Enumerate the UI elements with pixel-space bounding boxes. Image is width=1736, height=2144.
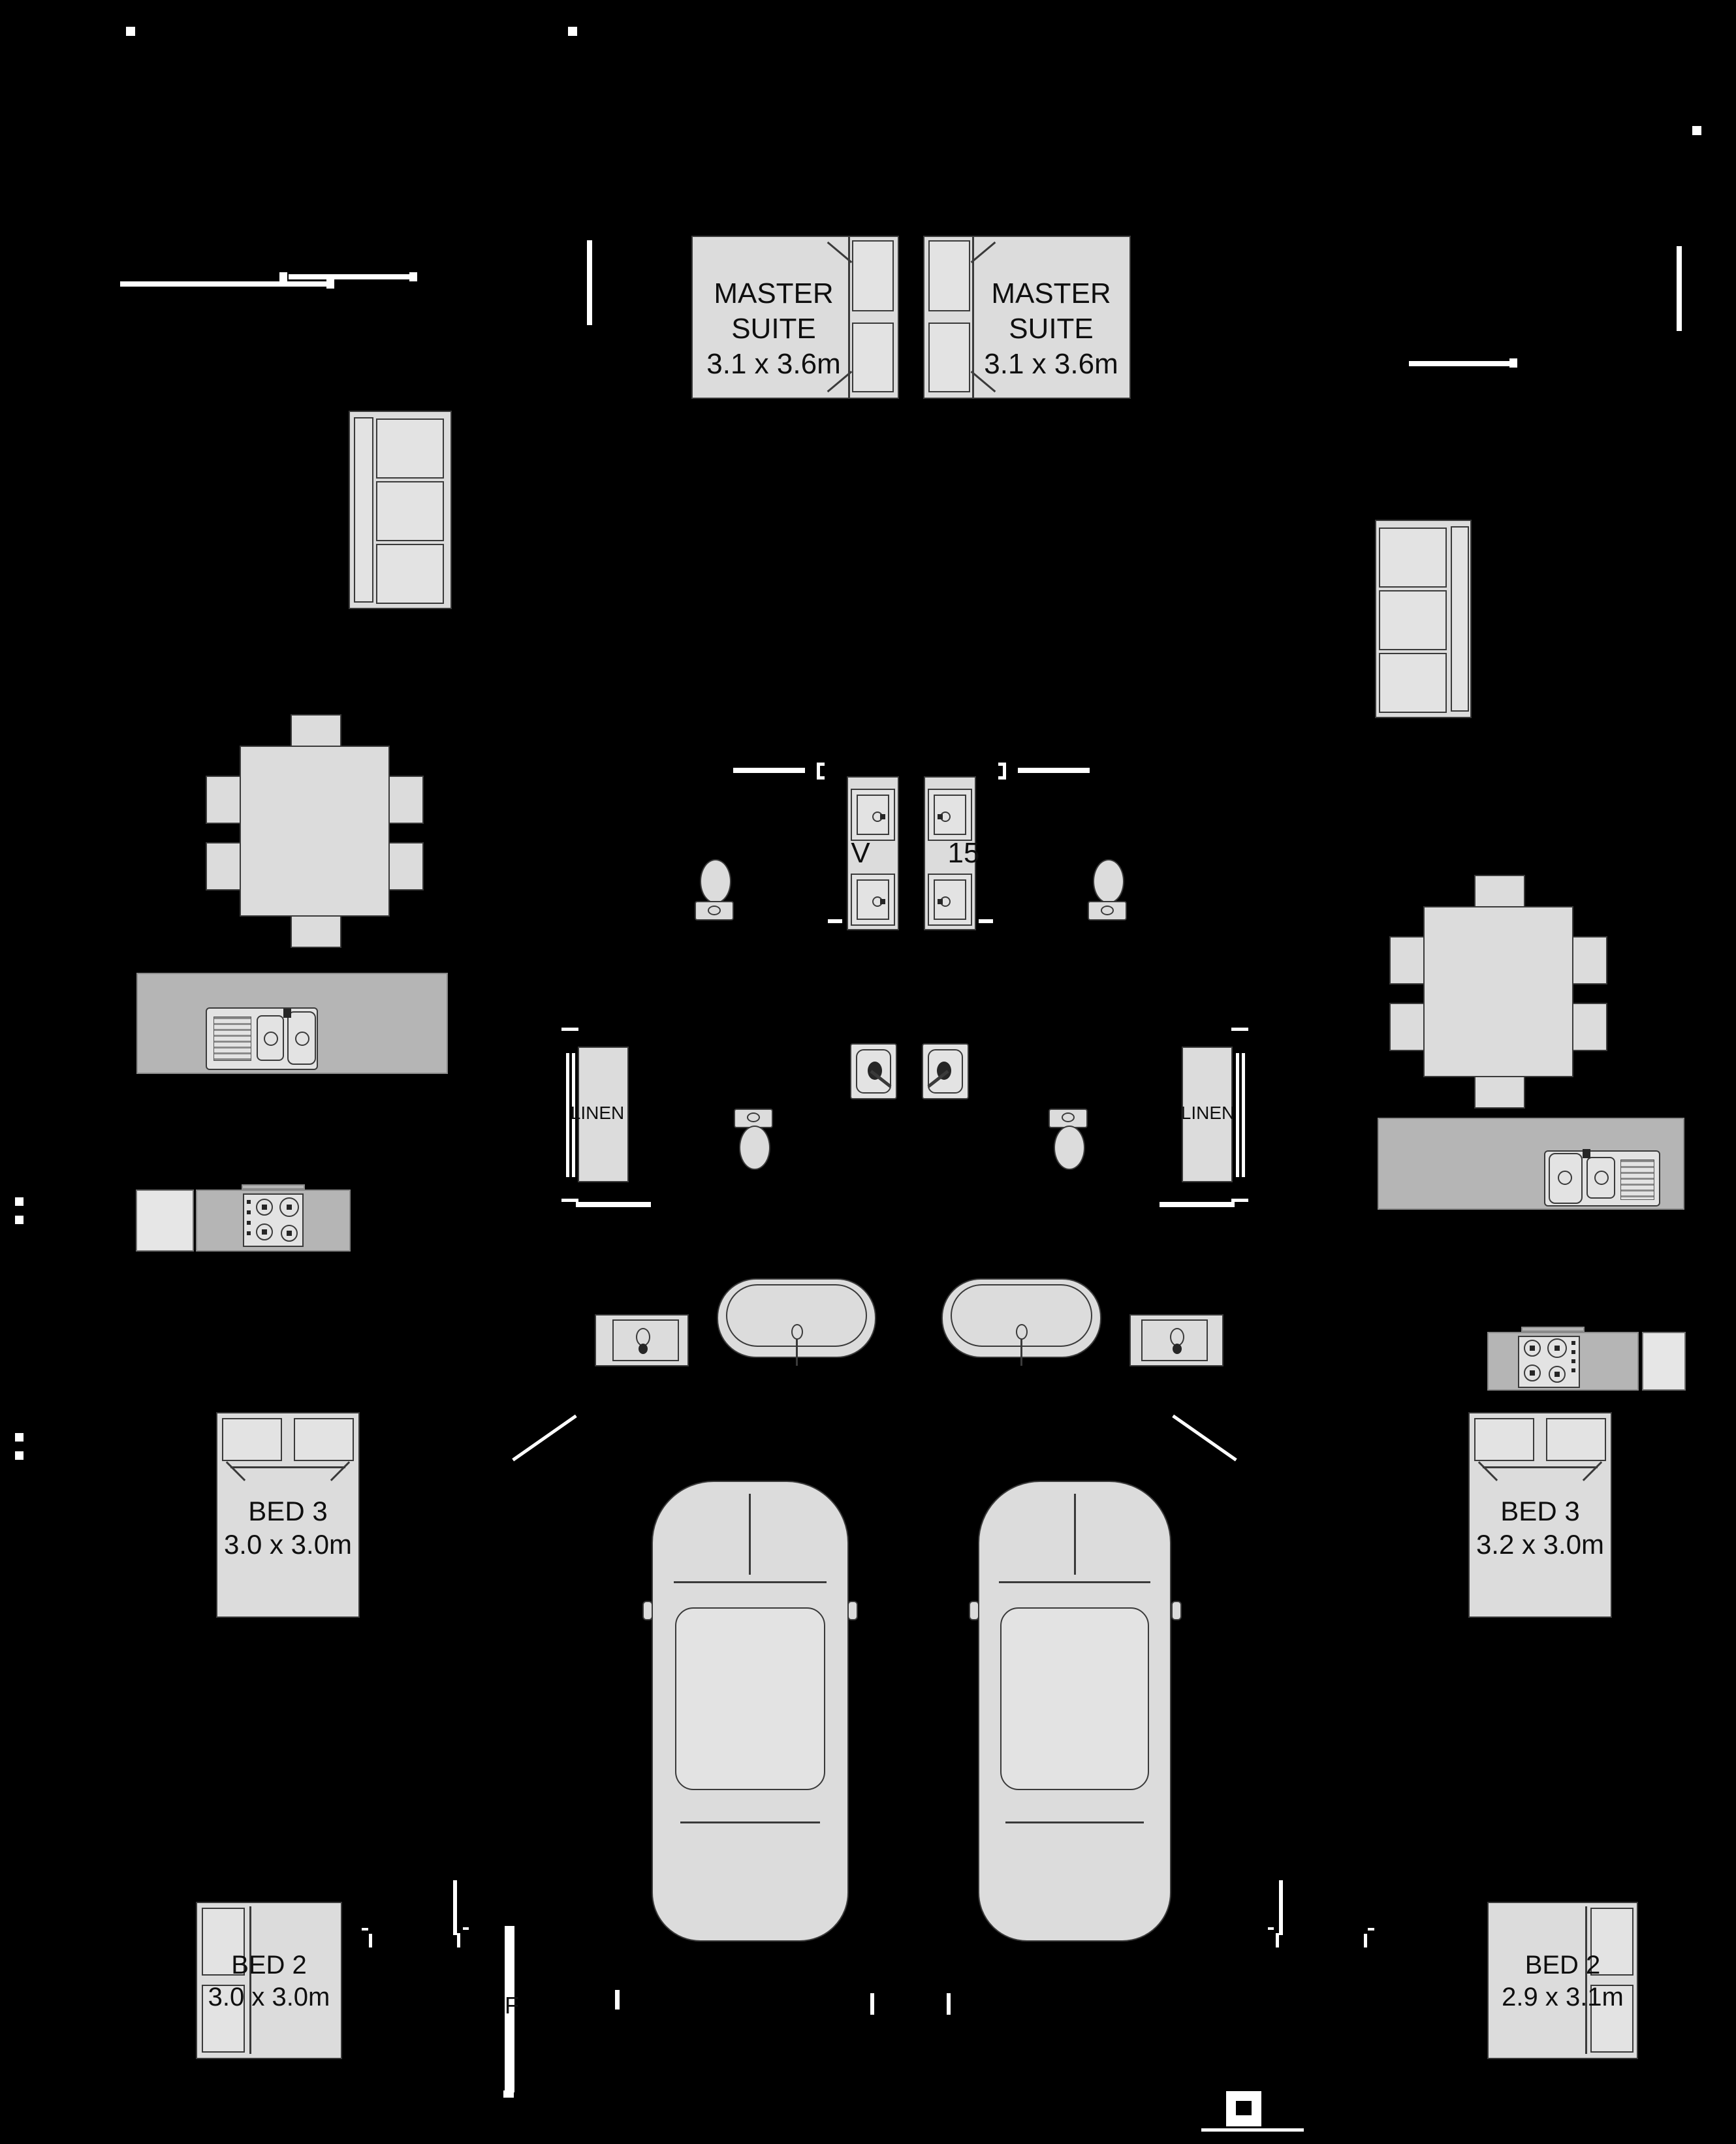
linen-left-wall-strip [576,1202,651,1207]
car-right-roof [1000,1607,1149,1790]
dining-left-chair-top [291,714,341,747]
hallway-jamb-l3 [362,1928,368,1931]
stove-left-burner1-dot [262,1205,267,1210]
vanity-right-basin2-spout [938,899,943,904]
stove-right-knob1 [1571,1341,1575,1345]
car-right-hood-line [999,1581,1150,1583]
toilet-ensuite-left-button [708,906,721,915]
bed3-left-pillow1 [222,1418,282,1461]
stove-right-burner2-dot [1555,1346,1560,1351]
entry-door-leaf-right [1172,1415,1237,1462]
bed3-right-pillow2 [1546,1418,1606,1461]
stove-right-knob4 [1571,1368,1575,1372]
linen-left-jamb-top [561,1028,578,1031]
window-bar-left-a-end1 [279,272,287,281]
master-suite-right-label: MASTER SUITE 3.1 x 3.6m [971,264,1131,394]
post-marker-line [1201,2128,1304,2132]
sofa-right-cushion1 [1379,528,1447,588]
linen-right-wall-strip [1160,1202,1235,1207]
master-bed-left-pillow1 [852,240,894,311]
linen-left-label: LINEN [565,1102,630,1124]
vanity-right-basin1-spout [938,814,943,819]
bathtub-left-drain [791,1324,803,1340]
entry-door-leaf-left [512,1415,577,1462]
boundary-marker-4 [15,1451,24,1460]
kitchen-right-tap [1583,1149,1590,1158]
hallway-jamb-r2 [1276,1933,1279,1947]
dining-right-chair-l2 [1389,1003,1425,1051]
stove-left-knob4 [247,1231,251,1235]
stove-right-burner4-dot [1555,1372,1560,1377]
hall-door-bracket-left [817,763,825,780]
car-left-roof [675,1607,825,1790]
stove-left-appliance [136,1190,194,1252]
stove-left-knob2 [247,1210,251,1214]
bathtub-left-tap [796,1338,798,1366]
car-right-mirror2 [1171,1601,1182,1620]
hallway-jamb-l4 [369,1934,372,1947]
boundary-marker-3 [15,1433,24,1442]
dining-right-chair-bottom [1474,1076,1525,1109]
hallway-jamb-l2 [457,1933,460,1947]
toilet-ensuite-right-bowl [1093,859,1124,904]
hall-door-bracket-right [998,763,1006,780]
hallway-jamb-r3 [1368,1928,1374,1931]
car-right-crease [1074,1494,1076,1575]
fridge-recess-tick [503,2090,514,2098]
car-right-rear-line [1005,1821,1144,1823]
dining-left-table [240,746,390,917]
dining-left-chair-bottom [291,915,341,948]
stove-left-burner2-dot [287,1205,292,1210]
car-left-mirror2 [847,1601,858,1620]
sofa-right-cushion2 [1379,590,1447,650]
window-bar-left-a [289,274,409,279]
sofa-left-cushion2 [376,481,444,541]
vanity-right-label: 15 [945,837,982,870]
toilet-main-right-bowl [1054,1126,1085,1170]
window-bar-right-a [1409,361,1512,366]
vanity-left-label: V [847,837,874,870]
window-vert-left [587,240,592,325]
sofa-left-cushion3 [376,544,444,604]
window-bar-left-b-end [326,279,334,289]
bath-vanity-left-spout [639,1344,648,1354]
hallway-jamb-l1 [463,1927,469,1930]
stove-left-knob3 [247,1221,251,1225]
window-bar-left-a-end2 [409,272,417,281]
dining-left-chair-r1 [388,776,424,824]
bathtub-right-drain [1016,1324,1028,1340]
bed3-right-label: BED 3 3.2 x 3.0m [1468,1492,1612,1564]
garage-jamb-3 [947,1993,951,2015]
kitchen-right-bowl-small-drain [1594,1171,1609,1185]
toilet-main-right-button [1062,1112,1075,1122]
window-jamb-top-right [1692,126,1701,135]
car-left-rear-line [680,1821,820,1823]
garage-jamb-1 [615,1990,620,2010]
floor-plan: MASTER SUITE 3.1 x 3.6mMASTER SUITE 3.1 … [0,0,1736,2144]
window-jamb-top-mid [568,27,577,36]
stove-right-hood [1521,1327,1585,1332]
toilet-main-left-button [747,1112,760,1122]
kitchen-left-drainer [213,1017,251,1061]
bed2-right-label: BED 2 2.9 x 3.1m [1487,1946,1638,2017]
dining-right-chair-l1 [1389,936,1425,985]
bed3-right-blanket-line [1483,1466,1598,1468]
bed3-right-pillow1 [1474,1418,1534,1461]
dining-left-chair-r2 [388,842,424,891]
dining-left-chair-l2 [206,842,241,891]
stove-right-appliance [1642,1332,1686,1391]
fridge-label: F [500,1991,524,2020]
vanity-left-basin1-spout [880,814,885,819]
stove-left-burner4-dot [287,1231,292,1236]
linen-right-label: LINEN [1175,1102,1240,1124]
master-bed-right-pillow1 [928,240,970,311]
bed3-left-pillow2 [294,1418,354,1461]
master-bed-right-pillow2 [928,323,970,392]
toilet-main-left-bowl [739,1126,770,1170]
bathtub-right-tap [1020,1338,1022,1366]
kitchen-right-bowl-big-drain [1558,1171,1572,1185]
dining-left-chair-l1 [206,776,241,824]
dining-right-chair-r1 [1572,936,1607,985]
master-bed-left-pillow2 [852,323,894,392]
linen-right-jamb-top [1231,1028,1248,1031]
vanity-left-basin2-spout [880,899,885,904]
dining-right-chair-r2 [1572,1003,1607,1051]
kitchen-left-tap [283,1009,291,1018]
stove-left-hood [242,1184,305,1190]
hallway-jamb-r1 [1268,1927,1274,1930]
linen-right-door-line2 [1242,1053,1245,1177]
hall-jamb-mid-right [979,919,993,923]
stove-left-knob1 [247,1200,251,1204]
dining-right-table [1423,906,1573,1077]
hall-window-bar-right [1018,768,1090,773]
window-bar-left-b [120,281,329,287]
car-left-hood-line [674,1581,827,1583]
kitchen-right-drainer [1620,1159,1654,1200]
stove-left-burner3-dot [262,1229,267,1235]
window-bar-right-a-end [1509,358,1517,368]
kitchen-left-bowl-small-drain [264,1032,278,1046]
hallway-vert-right [1279,1880,1283,1935]
sofa-left-back [354,417,373,603]
hallway-vert-left [453,1880,457,1935]
bed3-left-label: BED 3 3.0 x 3.0m [216,1492,360,1564]
bed2-left-label: BED 2 3.0 x 3.0m [196,1946,342,2017]
sofa-left-cushion1 [376,418,444,479]
boundary-marker-2 [15,1216,24,1224]
car-left-crease [749,1494,751,1575]
kitchen-left-bowl-big-drain [295,1032,309,1046]
stove-right-knob2 [1571,1350,1575,1354]
post-marker-inner [1236,2101,1252,2115]
stove-right-knob3 [1571,1359,1575,1363]
dining-right-chair-top [1474,875,1525,907]
bed3-left-blanket-line [230,1466,345,1468]
master-suite-left-label: MASTER SUITE 3.1 x 3.6m [694,264,853,394]
hallway-jamb-r4 [1364,1934,1367,1947]
sofa-right-back [1451,526,1469,712]
stove-right-burner3-dot [1530,1370,1535,1376]
toilet-ensuite-left-bowl [700,859,731,904]
sofa-right-cushion3 [1379,653,1447,713]
window-jamb-top-left [126,27,135,36]
window-vert-right [1677,246,1682,331]
hall-jamb-mid-left [828,919,842,923]
stove-right-burner1-dot [1530,1346,1535,1351]
hall-window-bar-left [733,768,805,773]
boundary-marker-1 [15,1197,24,1206]
garage-jamb-2 [870,1993,874,2015]
toilet-ensuite-right-button [1101,906,1114,915]
bath-vanity-right-spout [1173,1344,1182,1354]
